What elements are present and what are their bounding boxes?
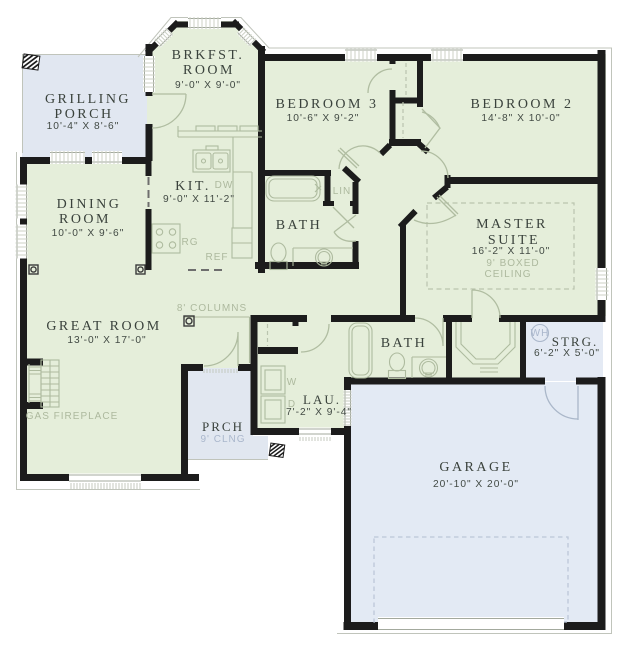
svg-text:GARAGE: GARAGE	[439, 460, 512, 475]
svg-text:BEDROOM 3: BEDROOM 3	[275, 97, 378, 112]
svg-text:LAU.: LAU.	[303, 392, 341, 407]
svg-text:GRILLING: GRILLING	[45, 92, 131, 107]
svg-text:BRKFST.: BRKFST.	[172, 48, 245, 63]
svg-text:BATH: BATH	[276, 218, 323, 233]
svg-text:10'-4" X 8'-6": 10'-4" X 8'-6"	[47, 121, 120, 132]
svg-text:MASTER: MASTER	[476, 217, 548, 232]
svg-text:ROOM: ROOM	[59, 212, 111, 227]
svg-text:13'-0" X 17'-0": 13'-0" X 17'-0"	[67, 335, 146, 346]
svg-text:16'-2" X 11'-0": 16'-2" X 11'-0"	[472, 246, 551, 257]
svg-text:6'-2" X 5'-0": 6'-2" X 5'-0"	[534, 348, 600, 359]
svg-text:9'-0" X 9'-0": 9'-0" X 9'-0"	[175, 80, 241, 91]
svg-text:10'-0" X 9'-6": 10'-0" X 9'-6"	[52, 228, 125, 239]
svg-text:WH: WH	[531, 328, 550, 339]
svg-text:14'-8" X 10'-0": 14'-8" X 10'-0"	[481, 113, 560, 124]
svg-text:20'-10" X 20'-0": 20'-10" X 20'-0"	[433, 479, 519, 490]
svg-text:KIT.: KIT.	[175, 179, 211, 194]
svg-text:GREAT ROOM: GREAT ROOM	[46, 319, 161, 334]
svg-text:8' COLUMNS: 8' COLUMNS	[177, 303, 247, 314]
svg-text:9' CLNG: 9' CLNG	[200, 434, 245, 445]
svg-text:DW: DW	[215, 180, 234, 191]
svg-text:STRG.: STRG.	[552, 334, 598, 349]
svg-text:PRCH: PRCH	[202, 419, 244, 434]
svg-text:9' BOXED: 9' BOXED	[486, 258, 539, 269]
svg-text:GAS FIREPLACE: GAS FIREPLACE	[26, 411, 118, 422]
svg-text:RG: RG	[182, 237, 199, 248]
svg-text:BATH: BATH	[381, 336, 428, 351]
svg-text:9'-0" X 11'-2": 9'-0" X 11'-2"	[163, 194, 235, 205]
svg-text:LIN: LIN	[333, 186, 352, 197]
svg-text:DINING: DINING	[57, 197, 122, 212]
svg-text:PORCH: PORCH	[54, 107, 113, 122]
svg-text:D: D	[288, 399, 296, 410]
svg-text:W: W	[287, 377, 297, 388]
svg-text:10'-6" X 9'-2": 10'-6" X 9'-2"	[287, 113, 360, 124]
svg-text:REF: REF	[206, 252, 229, 263]
svg-text:BEDROOM 2: BEDROOM 2	[470, 97, 573, 112]
svg-text:CEILING: CEILING	[484, 269, 531, 280]
svg-text:ROOM: ROOM	[183, 63, 235, 78]
